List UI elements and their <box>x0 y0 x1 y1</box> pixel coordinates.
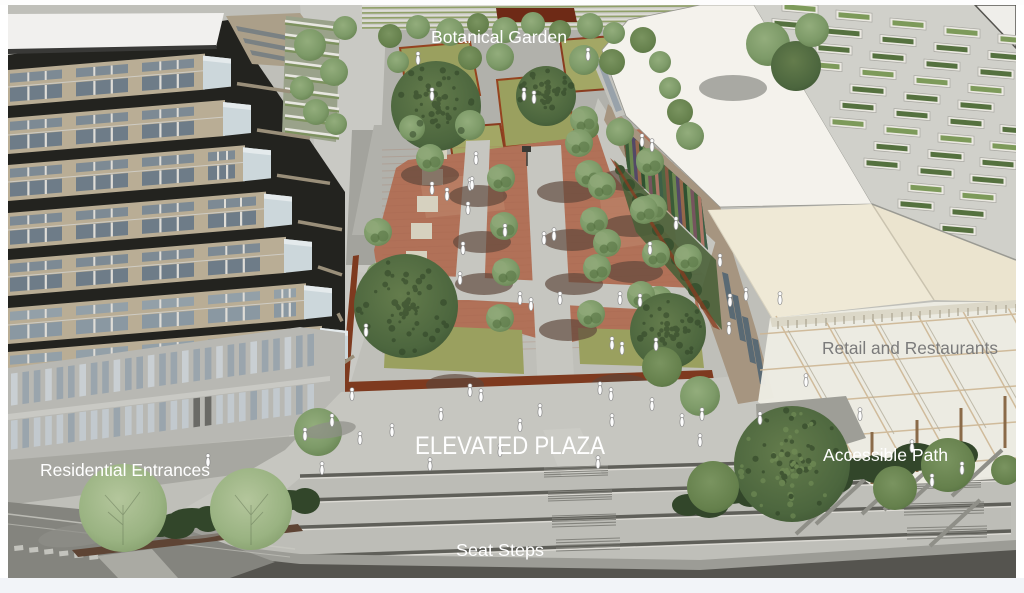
svg-text:Accessible Path: Accessible Path <box>823 445 948 465</box>
svg-text:Botanical Garden: Botanical Garden <box>431 27 567 47</box>
svg-text:ELEVATED PLAZA: ELEVATED PLAZA <box>415 432 605 460</box>
svg-text:Seat Steps: Seat Steps <box>456 540 544 560</box>
svg-text:Residential Entrances: Residential Entrances <box>40 460 210 480</box>
svg-text:Retail and Restaurants: Retail and Restaurants <box>822 338 998 358</box>
